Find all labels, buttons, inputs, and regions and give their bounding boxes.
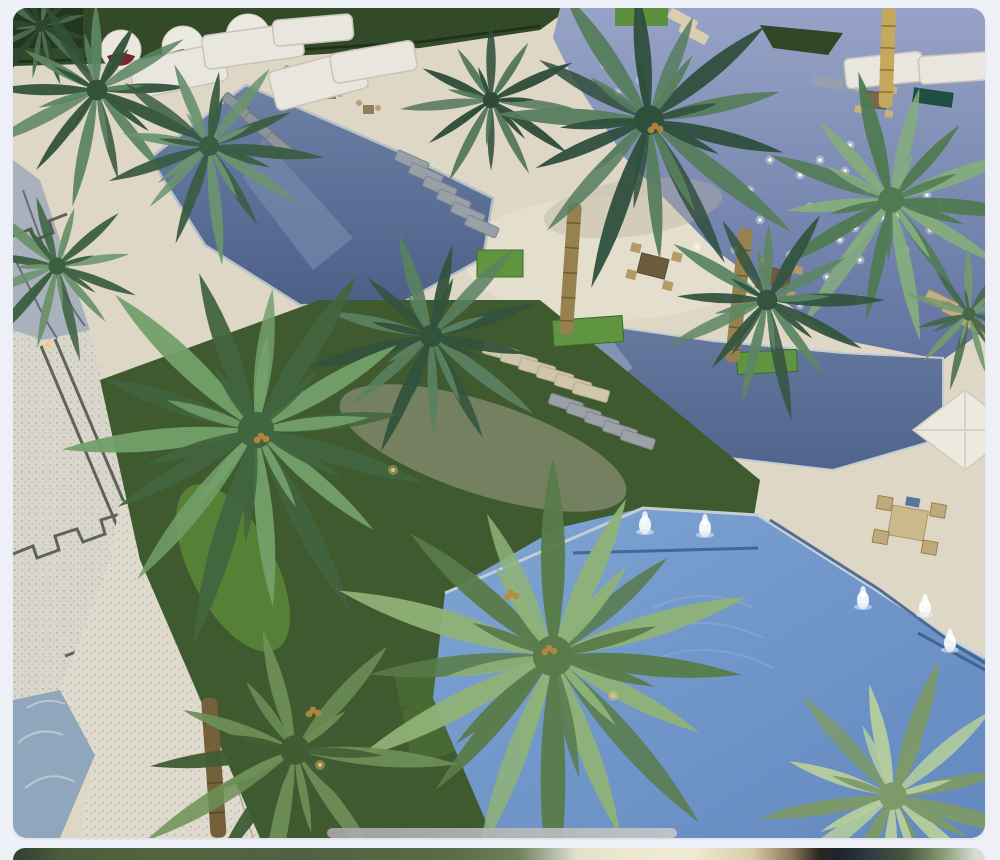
- pool-aerial-scene: [13, 8, 985, 838]
- photo-pool-aerial[interactable]: [13, 8, 985, 838]
- home-indicator[interactable]: [327, 828, 677, 838]
- photo-card-next[interactable]: [13, 848, 985, 860]
- gallery-scroll-view[interactable]: [0, 0, 1000, 860]
